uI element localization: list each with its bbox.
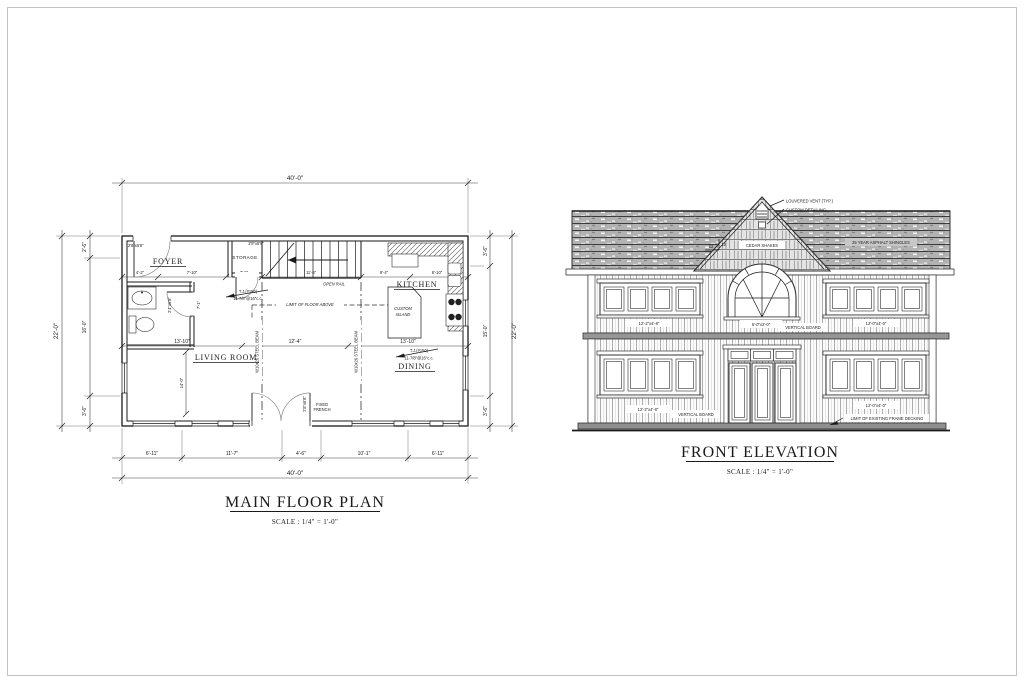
drawing-canvas: 40'-0" 2'-6" 16'-0" 3'-6" 22'-0" 3'-6" 1… bbox=[0, 0, 1024, 683]
lower-left-window bbox=[597, 351, 703, 398]
dim-left-seg-1: 16'-0" bbox=[82, 320, 88, 333]
floor-plan: 40'-0" 2'-6" 16'-0" 3'-6" 22'-0" 3'-6" 1… bbox=[53, 175, 518, 526]
deck-band bbox=[572, 423, 950, 431]
joist-label-2: T.J.(#150) bbox=[410, 348, 429, 353]
dim-mid-seg-0: 13'-10" bbox=[174, 339, 190, 345]
dim-left-seg-2: 3'-6" bbox=[82, 406, 88, 416]
dim-upper-seg-0: 4'-2" bbox=[136, 270, 145, 275]
dim-upper-seg-1: 7'-10" bbox=[187, 270, 198, 275]
joist-spec-1: 11-7/8"@16"c.c. bbox=[233, 296, 262, 301]
dim-mid-seg-1: 12'-4" bbox=[289, 339, 302, 345]
shingles-label: 25 YEAR ASPHALT SHINGLES bbox=[852, 240, 910, 245]
custom-island-label-2: ISLAND bbox=[396, 312, 411, 317]
plan-dim-bottom: 6'-11" 11'-7" 4'-6" 10'-1" 6'-11" 40'-0" bbox=[112, 451, 478, 481]
powder-door-label: 2'4"x6'8" bbox=[167, 297, 172, 313]
deck-limit-label: LIMIT OF EXISTING FRAME DECKING bbox=[851, 416, 924, 421]
lower-right-window-label: 12'-0"x4'-0" bbox=[866, 403, 887, 408]
dim-right-seg-0: 3'-6" bbox=[483, 246, 489, 256]
plan-dim-left: 2'-6" 16'-0" 3'-6" 22'-0" bbox=[53, 230, 93, 432]
slope-run-label: 12 bbox=[709, 244, 714, 249]
custom-island-label-1: CUSTOM bbox=[394, 306, 412, 311]
upper-left-window bbox=[597, 279, 703, 318]
custom-detail-glyph bbox=[759, 222, 766, 228]
lower-right-window bbox=[823, 351, 929, 398]
dim-upper-seg-3: 11'-6" bbox=[306, 270, 317, 275]
steel-beam-label-2: W10x26 STEEL BEAM bbox=[354, 331, 359, 373]
joist-label-1: T.J.(#150) bbox=[239, 289, 258, 294]
dim-bottom-seg-1: 11'-7" bbox=[226, 451, 239, 457]
dim-bottom-seg-3: 10'-1" bbox=[358, 451, 371, 457]
floor-band bbox=[583, 333, 949, 339]
fixed-french-label-2: FRENCH bbox=[313, 407, 330, 412]
elevation-title: FRONT ELEVATION bbox=[681, 444, 839, 461]
upper-right-window bbox=[823, 279, 929, 318]
upper-left-window-label: 12'-2"x4'-8" bbox=[639, 321, 660, 326]
room-label-storage: STORAGE bbox=[232, 255, 257, 260]
dim-bottom-total: 40'-0" bbox=[287, 470, 303, 477]
dim-mid-seg-2: 13'-10" bbox=[400, 339, 416, 345]
front-elevation: 12 12 LOUVERED VENT (TYP.) CUSTOM DETAIL… bbox=[566, 197, 954, 476]
patio-door-label: 2'8"x6'8" bbox=[302, 396, 307, 412]
arch-window-label: 6'-0"x2'-0" bbox=[752, 322, 771, 327]
plan-dim-right: 3'-6" 15'-0" 3'-6" 22'-0" bbox=[483, 230, 518, 432]
floor-plan-scale: SCALE : 1/4" = 1'-0" bbox=[272, 518, 338, 526]
custom-detailing-label: CUSTOM DETAILING bbox=[786, 208, 826, 213]
dim-upper-seg-5: 8'-10" bbox=[432, 270, 443, 275]
cedar-shakes-label: CEDAR SHAKES bbox=[746, 243, 778, 248]
dim-bottom-seg-0: 6'-11" bbox=[146, 451, 159, 457]
room-label-dining: DINING bbox=[398, 362, 431, 371]
limit-floor-above-label: LIMIT OF FLOOR ABOVE bbox=[286, 302, 334, 307]
dim-upper-seg-4: 9'-4" bbox=[380, 270, 389, 275]
room-label-foyer: FOYER bbox=[153, 257, 183, 266]
dim-bottom-seg-4: 6'-11" bbox=[432, 451, 445, 457]
room-label-living: LIVING ROOM bbox=[195, 353, 257, 362]
dim-left-seg-0: 2'-6" bbox=[82, 242, 88, 252]
steel-beam-label-1: W10x26 STEEL BEAM bbox=[255, 331, 260, 373]
dim-right-seg-1: 15'-0" bbox=[483, 324, 489, 337]
open-rail-label: OPEN RAIL bbox=[323, 282, 345, 287]
vertical-board-upper-label: VERTICAL BOARD bbox=[785, 325, 821, 330]
dim-right-total: 22'-0" bbox=[511, 323, 518, 339]
entry-door-label: 2'8"x6'8" bbox=[128, 243, 144, 248]
floor-plan-title: MAIN FLOOR PLAN bbox=[225, 494, 385, 511]
living-height-dim: 14'-0" bbox=[179, 377, 184, 388]
joist-spec-2: 11-7/8"@16"c.c. bbox=[404, 356, 433, 361]
french-door-elevation bbox=[723, 345, 801, 423]
slope-rise-label: 12 bbox=[722, 242, 727, 247]
dim-bottom-seg-2: 4'-6" bbox=[296, 451, 306, 457]
drawing-sheet: 40'-0" 2'-6" 16'-0" 3'-6" 22'-0" 3'-6" 1… bbox=[0, 0, 1024, 683]
dim-top-total: 40'-0" bbox=[287, 175, 303, 182]
room-label-kitchen: KITCHEN bbox=[397, 280, 438, 289]
dim-left-total: 22'-0" bbox=[53, 323, 60, 339]
powder-height-dim: 7'-1" bbox=[196, 300, 201, 309]
plan-dim-top: 40'-0" bbox=[112, 175, 478, 186]
elevation-scale: SCALE : 1/4" = 1'-0" bbox=[727, 468, 793, 476]
louvered-vent-label: LOUVERED VENT (TYP.) bbox=[786, 199, 834, 204]
vertical-board-lower-label: VERTICAL BOARD bbox=[678, 412, 714, 417]
lower-left-window-label: 12'-2"x4'-8" bbox=[638, 407, 659, 412]
dim-right-seg-2: 3'-6" bbox=[483, 406, 489, 416]
upper-right-window-label: 12'-0"x4'-0" bbox=[866, 321, 887, 326]
